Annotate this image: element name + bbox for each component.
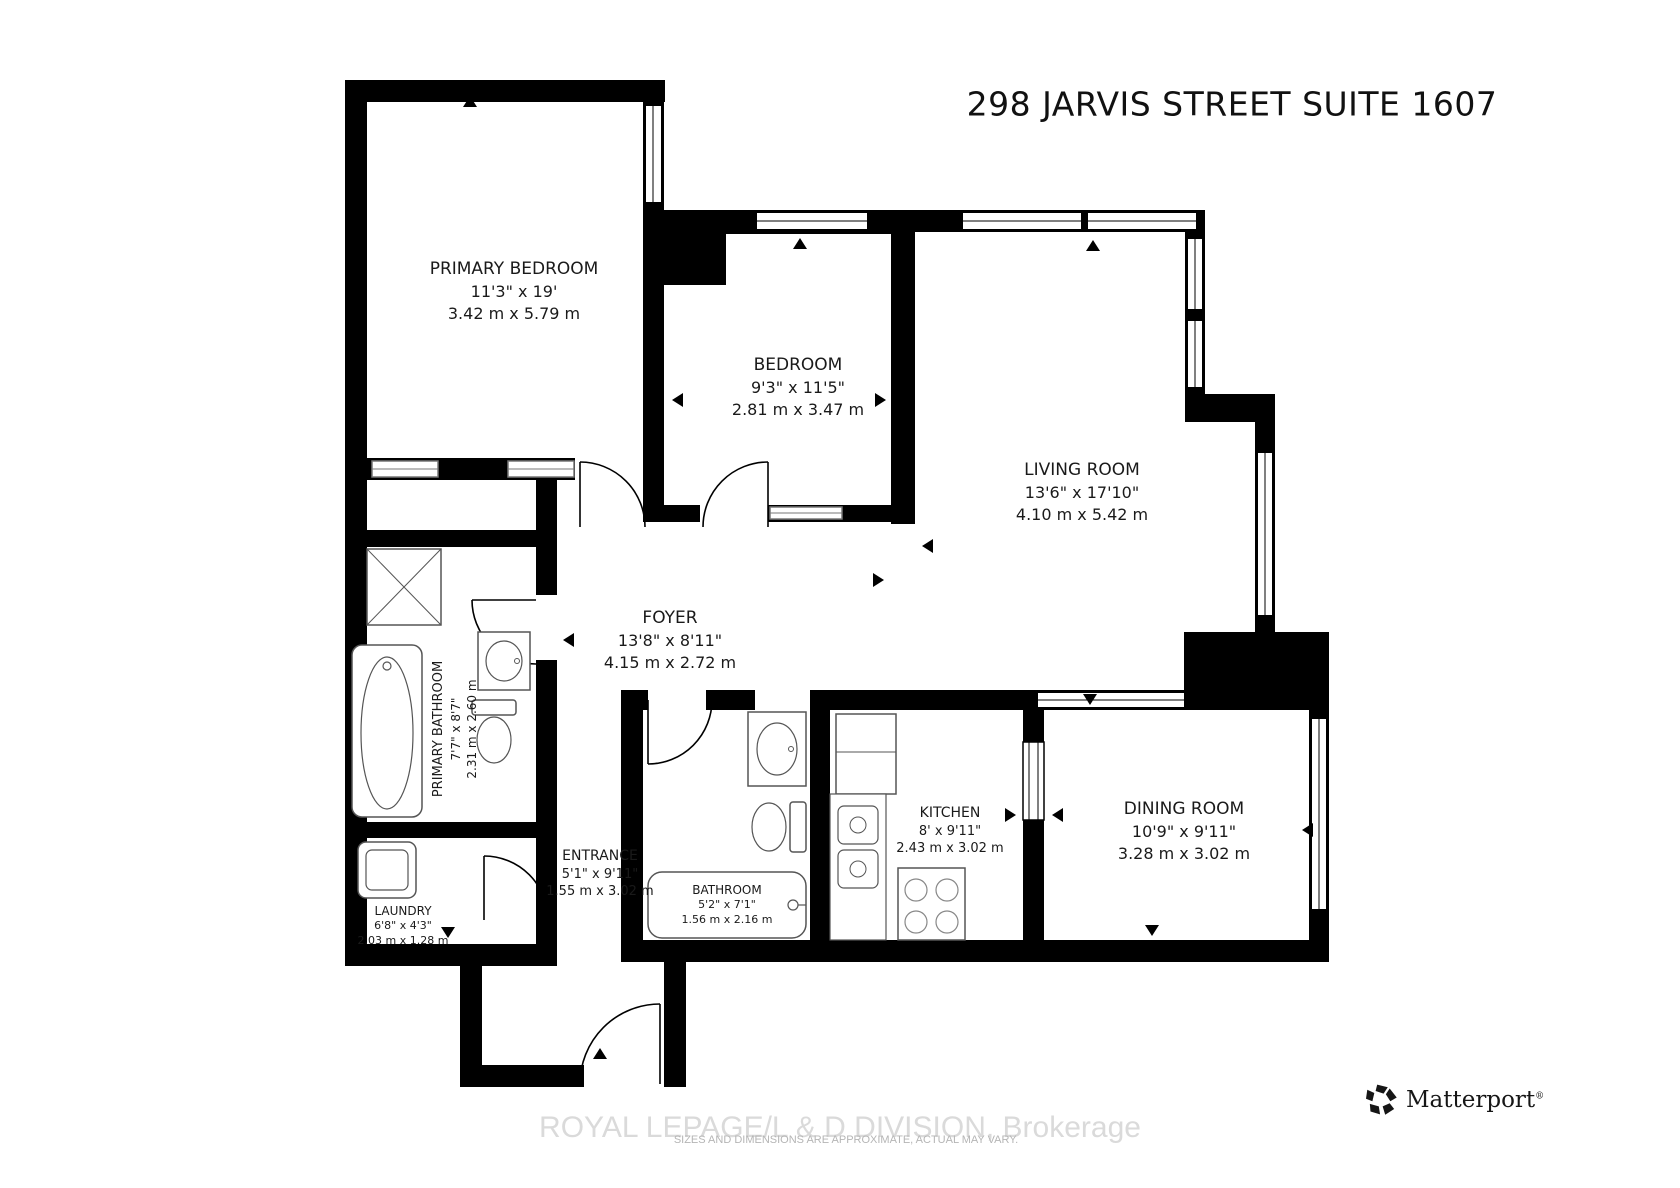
- sink-icon: [748, 712, 806, 786]
- washer-icon: [358, 842, 416, 898]
- door-arc: [580, 1004, 660, 1084]
- matterport-icon: [1366, 1084, 1398, 1116]
- window: [1257, 452, 1273, 616]
- doors: [472, 462, 768, 1084]
- room-label-kitchen: KITCHEN 8' x 9'11" 2.43 m x 3.02 m: [896, 804, 1003, 858]
- arrow-right-icon: [873, 573, 884, 587]
- toilet-icon: [752, 802, 806, 852]
- pass-through: [1023, 742, 1044, 820]
- room-dim-metric: 2.43 m x 3.02 m: [896, 840, 1003, 858]
- wall: [345, 822, 557, 838]
- room-label-bedroom: BEDROOM 9'3" x 11'5" 2.81 m x 3.47 m: [732, 354, 864, 420]
- room-name: ENTRANCE: [546, 847, 653, 866]
- room-dim-imperial: 13'6" x 17'10": [1016, 482, 1148, 504]
- room-dim-imperial: 5'1" x 9'11": [546, 866, 653, 884]
- room-dim-metric: 2.81 m x 3.47 m: [732, 398, 864, 420]
- wall: [536, 660, 557, 944]
- wall: [664, 962, 686, 1087]
- sink-icon: [478, 632, 530, 690]
- room-name: KITCHEN: [896, 804, 1003, 823]
- wall: [1023, 820, 1044, 942]
- room-dim-imperial: 5'2" x 7'1": [682, 898, 773, 913]
- wall: [345, 80, 665, 102]
- room-dim-metric: 1.55 m x 3.02 m: [546, 883, 653, 901]
- room-dim-imperial: 9'3" x 11'5": [732, 377, 864, 399]
- wall: [460, 1065, 584, 1087]
- room-dim-metric: 3.42 m x 5.79 m: [430, 302, 599, 324]
- room-dim-metric: 1.56 m x 2.16 m: [682, 913, 773, 928]
- sliding-door-icon: [508, 461, 574, 477]
- room-label-dining-room: DINING ROOM 10'9" x 9'11" 3.28 m x 3.02 …: [1118, 798, 1250, 864]
- sliding-door-icon: [372, 461, 438, 477]
- arrow-up-icon: [1086, 240, 1100, 251]
- window: [1087, 212, 1197, 230]
- wall: [664, 505, 700, 522]
- closet-icon: [367, 549, 441, 625]
- window: [1187, 238, 1203, 310]
- arrow-up-icon: [793, 238, 807, 249]
- arrow-left-icon: [1052, 808, 1063, 822]
- room-name: PRIMARY BATHROOM: [430, 661, 448, 797]
- arrow-up-icon: [593, 1048, 607, 1059]
- room-label-primary-bathroom: PRIMARY BATHROOM 7'7" x 8'7" 2.31 m x 2.…: [430, 661, 480, 797]
- room-name: DINING ROOM: [1118, 798, 1250, 821]
- window: [1187, 320, 1203, 388]
- arrow-left-icon: [672, 393, 683, 407]
- wall: [810, 690, 830, 942]
- wall: [643, 458, 664, 480]
- sliding-door-icon: [770, 507, 842, 519]
- bathtub-icon: [352, 645, 422, 817]
- window: [645, 105, 662, 203]
- room-name: LIVING ROOM: [1016, 459, 1148, 482]
- arrow-right-icon: [875, 393, 886, 407]
- wall: [536, 480, 557, 595]
- size-disclaimer: SIZES AND DIMENSIONS ARE APPROXIMATE, AC…: [674, 1134, 1018, 1146]
- room-label-primary-bedroom: PRIMARY BEDROOM 11'3" x 19' 3.42 m x 5.7…: [430, 258, 599, 324]
- room-dim-metric: 2.03 m x 1.28 m: [358, 934, 449, 949]
- arrow-down-icon: [1145, 925, 1159, 936]
- page-title: 298 JARVIS STREET SUITE 1607: [967, 85, 1498, 124]
- fridge-icon: [836, 714, 896, 794]
- room-label-bathroom: BATHROOM 5'2" x 7'1" 1.56 m x 2.16 m: [682, 882, 773, 928]
- window: [962, 212, 1082, 230]
- room-dim-metric: 3.28 m x 3.02 m: [1118, 842, 1250, 864]
- wall: [345, 530, 557, 547]
- room-label-laundry: LAUNDRY 6'8" x 4'3" 2.03 m x 1.28 m: [358, 903, 449, 949]
- room-dim-metric: 2.31 m x 2.60 m: [464, 661, 480, 797]
- arrow-left-icon: [563, 633, 574, 647]
- room-dim-imperial: 6'8" x 4'3": [358, 919, 449, 934]
- room-label-foyer: FOYER 13'8" x 8'11" 4.15 m x 2.72 m: [604, 607, 736, 673]
- arrow-left-icon: [1302, 823, 1313, 837]
- matterport-wordmark: Matterport®: [1406, 1087, 1544, 1113]
- wall: [621, 690, 643, 940]
- room-name: BATHROOM: [682, 882, 773, 898]
- registered-mark: ®: [1535, 1091, 1544, 1101]
- room-name: FOYER: [604, 607, 736, 630]
- door-arc: [580, 462, 645, 527]
- room-dim-metric: 4.10 m x 5.42 m: [1016, 503, 1148, 525]
- room-dim-imperial: 10'9" x 9'11": [1118, 821, 1250, 843]
- room-name: BEDROOM: [732, 354, 864, 377]
- room-dim-imperial: 7'7" x 8'7": [448, 661, 464, 797]
- arrow-left-icon: [922, 539, 933, 553]
- room-label-entrance: ENTRANCE 5'1" x 9'11" 1.55 m x 3.02 m: [546, 847, 653, 901]
- stove-icon: [898, 868, 965, 940]
- door-arc: [703, 462, 768, 527]
- wall: [706, 690, 755, 710]
- floor-plan-drawing: [0, 0, 1680, 1188]
- matterport-logo: Matterport®: [1366, 1084, 1544, 1116]
- window: [1037, 692, 1185, 708]
- room-label-living-room: LIVING ROOM 13'6" x 17'10" 4.10 m x 5.42…: [1016, 459, 1148, 525]
- wall: [621, 940, 1329, 962]
- room-name: LAUNDRY: [358, 903, 449, 919]
- wall: [891, 210, 915, 524]
- room-dim-imperial: 11'3" x 19': [430, 281, 599, 303]
- door-arc: [648, 700, 712, 764]
- room-dim-imperial: 8' x 9'11": [896, 823, 1003, 841]
- window: [756, 212, 868, 230]
- wall: [830, 690, 968, 710]
- room-name: PRIMARY BEDROOM: [430, 258, 599, 281]
- floor-plan-page: 298 JARVIS STREET SUITE 1607 PRIMARY BED…: [0, 0, 1680, 1188]
- room-dim-imperial: 13'8" x 8'11": [604, 630, 736, 652]
- window: [1311, 718, 1327, 910]
- room-dim-metric: 4.15 m x 2.72 m: [604, 651, 736, 673]
- arrow-right-icon: [1005, 808, 1016, 822]
